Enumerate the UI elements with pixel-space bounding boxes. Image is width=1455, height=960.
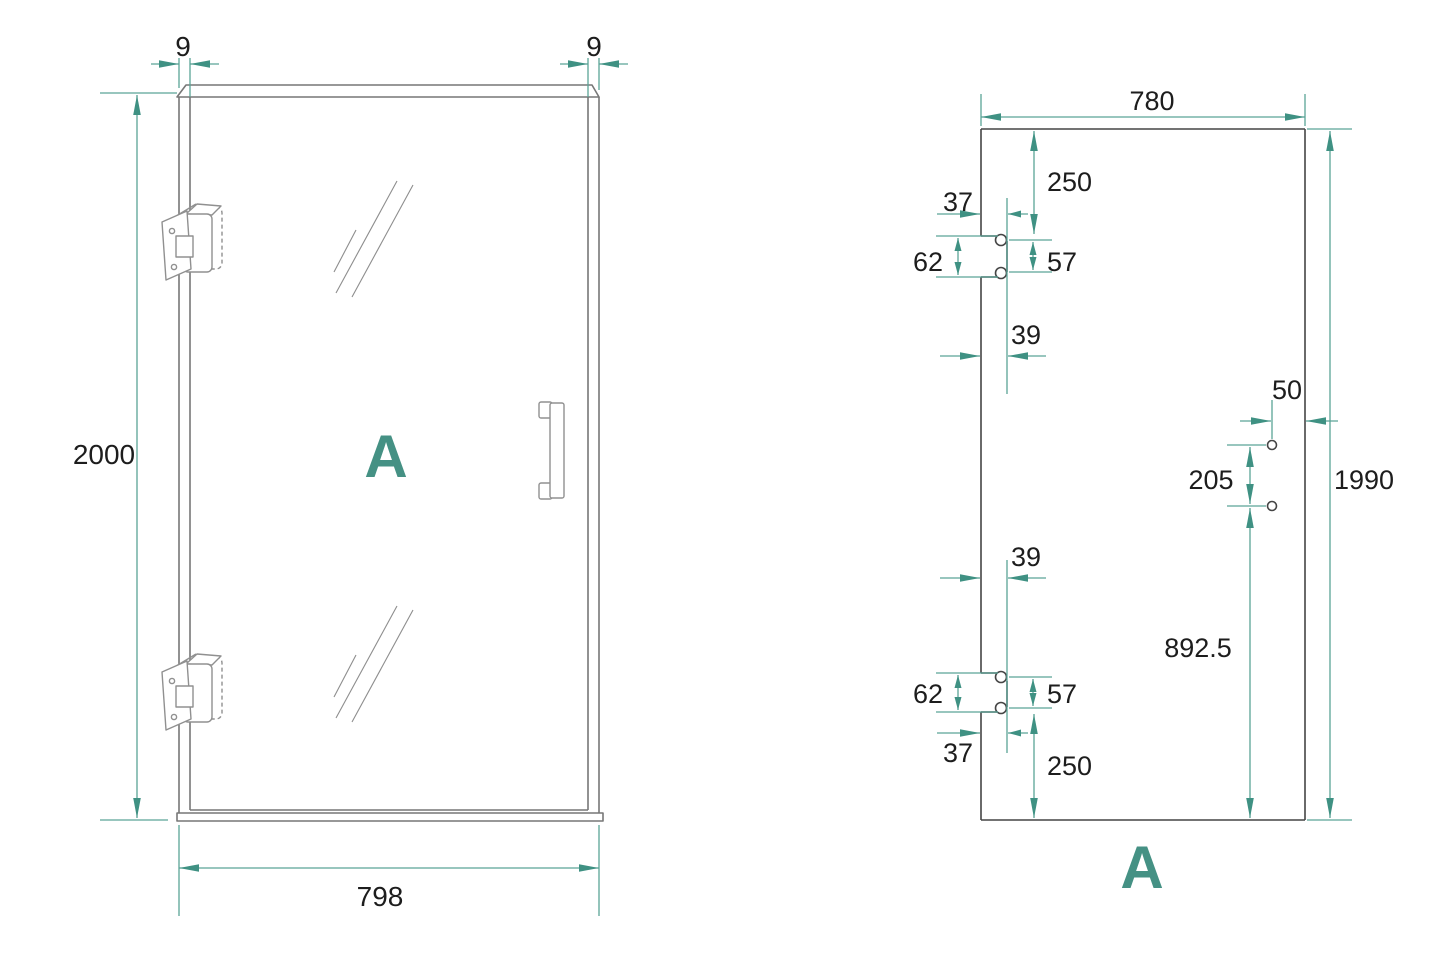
- dim-label: 39: [1011, 320, 1041, 350]
- dim-label: 205: [1188, 465, 1233, 495]
- dim-bottom-hinge-hole-spacing: 57: [1009, 677, 1077, 709]
- door-view-label: A: [364, 423, 407, 490]
- dim-label: 798: [357, 881, 404, 912]
- dim-bottom-hinge-from-bottom: 250: [1034, 714, 1092, 818]
- handle-hole-upper: [1268, 441, 1277, 450]
- dim-handle-hole-spacing: 205: [1188, 445, 1266, 506]
- dim-label: 1990: [1334, 465, 1394, 495]
- dim-label: 250: [1047, 751, 1092, 781]
- door-handle: [539, 402, 564, 499]
- door-elevation-view: 9 9 2000 798 A: [73, 31, 628, 916]
- dim-label: 39: [1011, 542, 1041, 572]
- handle-hole-lower: [1268, 502, 1277, 511]
- dim-bottom-hinge-cutout-height: 62: [913, 673, 998, 712]
- dim-label: 62: [913, 247, 943, 277]
- dim-door-height: 2000: [73, 93, 177, 820]
- glass-reflection-lower: [334, 606, 413, 722]
- door-top-rail: [177, 85, 599, 97]
- dim-label: 37: [943, 738, 973, 768]
- dim-panel-height: 1990: [1307, 129, 1394, 820]
- bottom-seal: [177, 813, 603, 821]
- bottom-hinge: [162, 654, 222, 730]
- dim-label: 37: [943, 187, 973, 217]
- dim-label: 50: [1272, 375, 1302, 405]
- dim-label: 892.5: [1164, 633, 1232, 663]
- dim-top-hinge-depth: 39: [940, 320, 1046, 356]
- dim-handle-from-edge: 50: [1240, 375, 1338, 439]
- glass-panel-drawing: 780 1990 250 37 62: [913, 86, 1394, 901]
- glass-reflection-upper: [334, 181, 413, 297]
- bottom-hinge-cutout: [981, 672, 1007, 714]
- dim-bottom-hinge-offset: 37: [937, 733, 1028, 768]
- dim-label: 250: [1047, 167, 1092, 197]
- technical-drawing-canvas: 9 9 2000 798 A: [0, 0, 1455, 960]
- dim-top-hinge-offset: 37: [937, 187, 1028, 394]
- dim-label: 2000: [73, 439, 135, 470]
- dim-handle-from-bottom: 892.5: [1164, 508, 1250, 818]
- dim-top-hinge-from-top: 250: [1034, 131, 1092, 234]
- dim-label: 57: [1047, 679, 1077, 709]
- panel-view-label: A: [1120, 834, 1163, 901]
- top-hinge: [162, 204, 222, 280]
- glass-panel-outline: [981, 129, 1305, 820]
- dim-label: 780: [1129, 86, 1174, 116]
- dim-label: 62: [913, 679, 943, 709]
- dim-label: 9: [175, 31, 191, 62]
- top-hinge-cutout: [981, 235, 1007, 279]
- dim-label: 9: [586, 31, 602, 62]
- dim-bottom-hinge-depth: 39: [940, 542, 1046, 753]
- dim-door-width: 798: [179, 825, 599, 916]
- dim-top-hinge-hole-spacing: 57: [1009, 240, 1077, 277]
- technical-drawing-page: 9 9 2000 798 A: [0, 0, 1455, 960]
- dim-label: 57: [1047, 247, 1077, 277]
- dim-panel-width: 780: [981, 86, 1305, 126]
- dim-top-hinge-cutout-height: 62: [913, 236, 998, 277]
